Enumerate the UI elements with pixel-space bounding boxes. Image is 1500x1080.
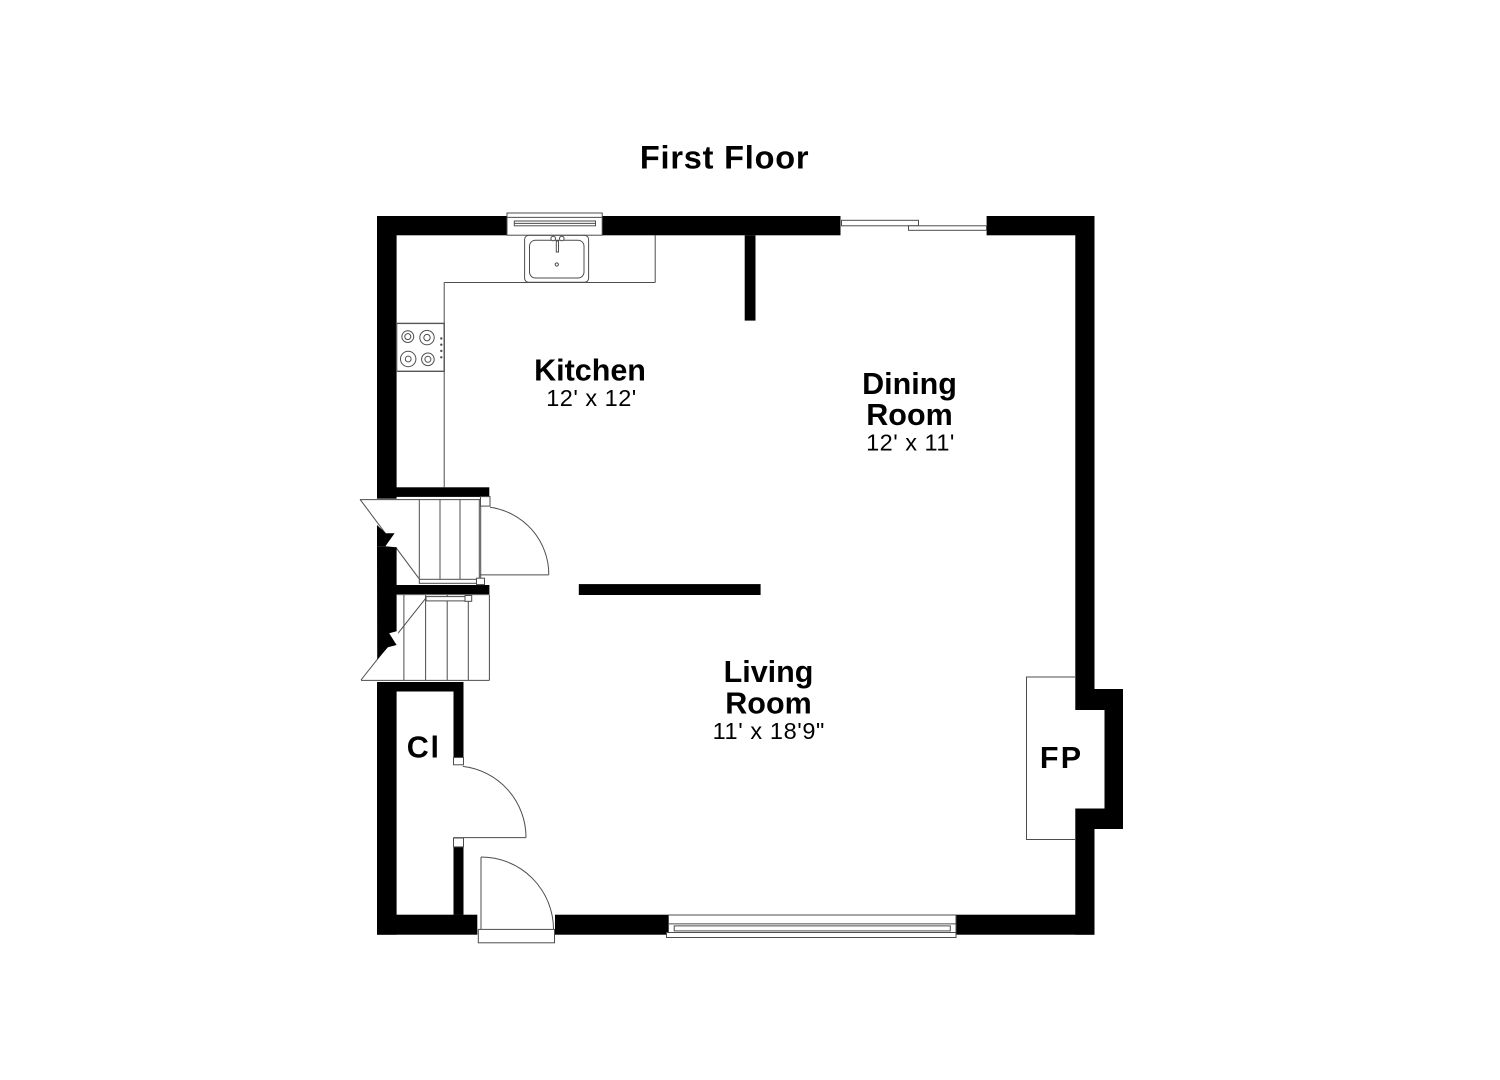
svg-text:FP: FP (1040, 741, 1083, 775)
svg-text:Living: Living (724, 655, 814, 689)
svg-text:12' x 12': 12' x 12' (546, 385, 637, 411)
svg-text:First Floor: First Floor (640, 140, 810, 176)
svg-text:Cl: Cl (407, 730, 441, 764)
svg-text:Kitchen: Kitchen (534, 354, 646, 388)
svg-text:Room: Room (725, 686, 811, 720)
svg-text:Room: Room (866, 398, 952, 432)
svg-text:12' x 11': 12' x 11' (866, 429, 955, 455)
svg-text:11' x 18'9": 11' x 18'9" (713, 718, 825, 744)
svg-text:Dining: Dining (862, 367, 957, 401)
